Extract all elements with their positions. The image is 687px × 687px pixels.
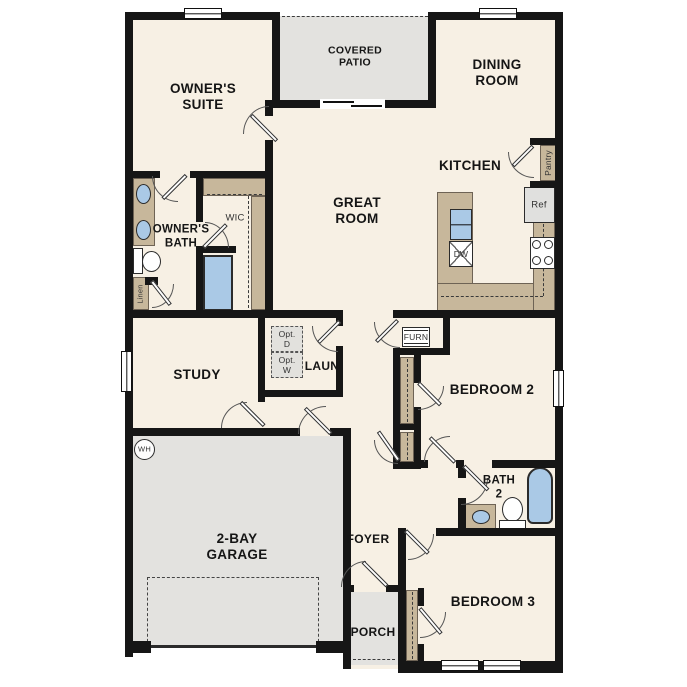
room-label-wic: WIC — [225, 212, 244, 223]
fixture-label-linen: Linen — [137, 284, 146, 303]
wall-right — [555, 12, 563, 673]
fixture-label-furnace: FURN — [404, 332, 428, 342]
wic-rod-dashed-h — [207, 194, 262, 195]
fixture-label-water-heater: WH — [138, 445, 151, 454]
fixture-label-refrigerator: Ref — [531, 199, 546, 210]
garage-door-threshold — [148, 645, 318, 648]
wall-mid-left — [125, 310, 343, 318]
furnace-coil-line-bottom — [404, 343, 428, 344]
owners-bath-sink-1 — [136, 184, 151, 204]
room-label-owners-suite: OWNER'S SUITE — [170, 81, 236, 113]
room-label-kitchen: KITCHEN — [439, 158, 501, 174]
sliding-door-panel-2 — [351, 105, 382, 107]
wall-laundry-south — [258, 390, 343, 397]
wall-wic-west-b — [196, 250, 203, 318]
stove-burner-4 — [544, 256, 553, 265]
room-label-foyer: FOYER — [347, 532, 390, 546]
window-mullion — [185, 13, 221, 14]
room-label-porch: PORCH — [351, 625, 396, 639]
wall-garage-stub-left — [125, 641, 151, 653]
kitchen-counter-dashed-h — [441, 296, 543, 297]
garage-door-dashed — [147, 577, 319, 647]
wall-bed3-south — [398, 661, 563, 673]
fixture-label-opt-washer: Opt. W — [279, 355, 296, 375]
stove-burner-3 — [532, 256, 541, 265]
window-mullion — [442, 665, 478, 666]
wall-bath-north-b — [190, 171, 273, 178]
shower — [203, 255, 233, 311]
room-label-covered-patio: COVERED PATIO — [328, 45, 382, 70]
wic-shelf-right — [251, 196, 266, 310]
wall-pantry-south — [530, 181, 563, 188]
wic-rod-dashed-v — [248, 196, 249, 308]
window-bedroom3-right — [483, 660, 521, 671]
wall-bed3-west — [398, 528, 406, 669]
bath2-sink — [472, 510, 490, 524]
wall-closet1-east-a — [414, 355, 421, 383]
window-bedroom3-left — [441, 660, 479, 671]
wall-bed3-north-b — [436, 528, 563, 536]
wall-left — [125, 12, 133, 657]
room-label-owners-bath: OWNER'S BATH — [153, 223, 210, 250]
hall-closet-rod-dashed — [407, 433, 408, 460]
fixture-label-pantry: Pantry — [543, 150, 553, 176]
window-bedroom2 — [553, 370, 564, 407]
bedroom2-closet-rod-dashed — [407, 359, 408, 422]
window-owners-suite — [184, 8, 222, 19]
bedroom3-closet-rod-dashed — [412, 592, 413, 659]
wall-furn-south — [393, 348, 450, 355]
sliding-door-panel-1 — [323, 101, 354, 103]
kitchen-sink-divider — [451, 224, 471, 225]
window-mullion — [126, 352, 127, 391]
wall-garage-stub-right — [316, 641, 351, 653]
bath2-tub — [527, 467, 553, 524]
room-label-great-room: GREAT ROOM — [333, 195, 381, 227]
room-label-bedroom-3: BEDROOM 3 — [451, 594, 535, 610]
patio-open-edge-dashed — [282, 16, 428, 17]
room-label-bath-2: BATH 2 — [483, 474, 515, 501]
window-study — [121, 351, 132, 392]
room-label-garage: 2-BAY GARAGE — [206, 531, 267, 563]
wall-garage-north-a — [125, 428, 300, 436]
wall-wic-west-a — [196, 178, 203, 222]
wall-bed2-south-c — [492, 460, 563, 468]
owners-toilet-bowl — [142, 251, 161, 272]
wall-patio-right — [428, 12, 436, 108]
window-mullion — [480, 13, 516, 14]
wall-mid-right — [393, 310, 563, 318]
room-label-study: STUDY — [173, 367, 220, 383]
kitchen-sink — [450, 209, 472, 240]
wall-furn-east — [443, 310, 450, 355]
window-mullion — [558, 371, 559, 406]
floor-plan: OWNER'S SUITE COVERED PATIO DINING ROOM … — [0, 0, 687, 687]
wall-closet-east-b — [414, 407, 421, 467]
fixture-label-dishwasher: DW — [454, 249, 469, 259]
porch-open-edge-dashed — [353, 659, 395, 660]
stove-burner-2 — [544, 240, 553, 249]
room-label-bedroom-2: BEDROOM 2 — [450, 382, 534, 398]
patio-sliding-door — [320, 99, 385, 109]
wall-block-east — [265, 171, 273, 318]
window-dining — [479, 8, 517, 19]
stove-burner-1 — [532, 240, 541, 249]
wall-bed3-closet-stub-bottom — [418, 644, 424, 662]
wall-bed3-closet-stub-top — [418, 588, 424, 606]
wall-closet-divider — [400, 424, 414, 430]
wall-pantry-north — [530, 138, 563, 145]
wall-porch-north-b — [386, 585, 398, 592]
room-label-laundry: LAUN — [305, 359, 340, 373]
wall-patio-left — [272, 12, 280, 108]
owners-bath-sink-2 — [136, 220, 151, 240]
fixture-label-opt-dryer: Opt. D — [279, 329, 296, 349]
room-label-dining-room: DINING ROOM — [472, 57, 521, 89]
window-mullion — [484, 665, 520, 666]
